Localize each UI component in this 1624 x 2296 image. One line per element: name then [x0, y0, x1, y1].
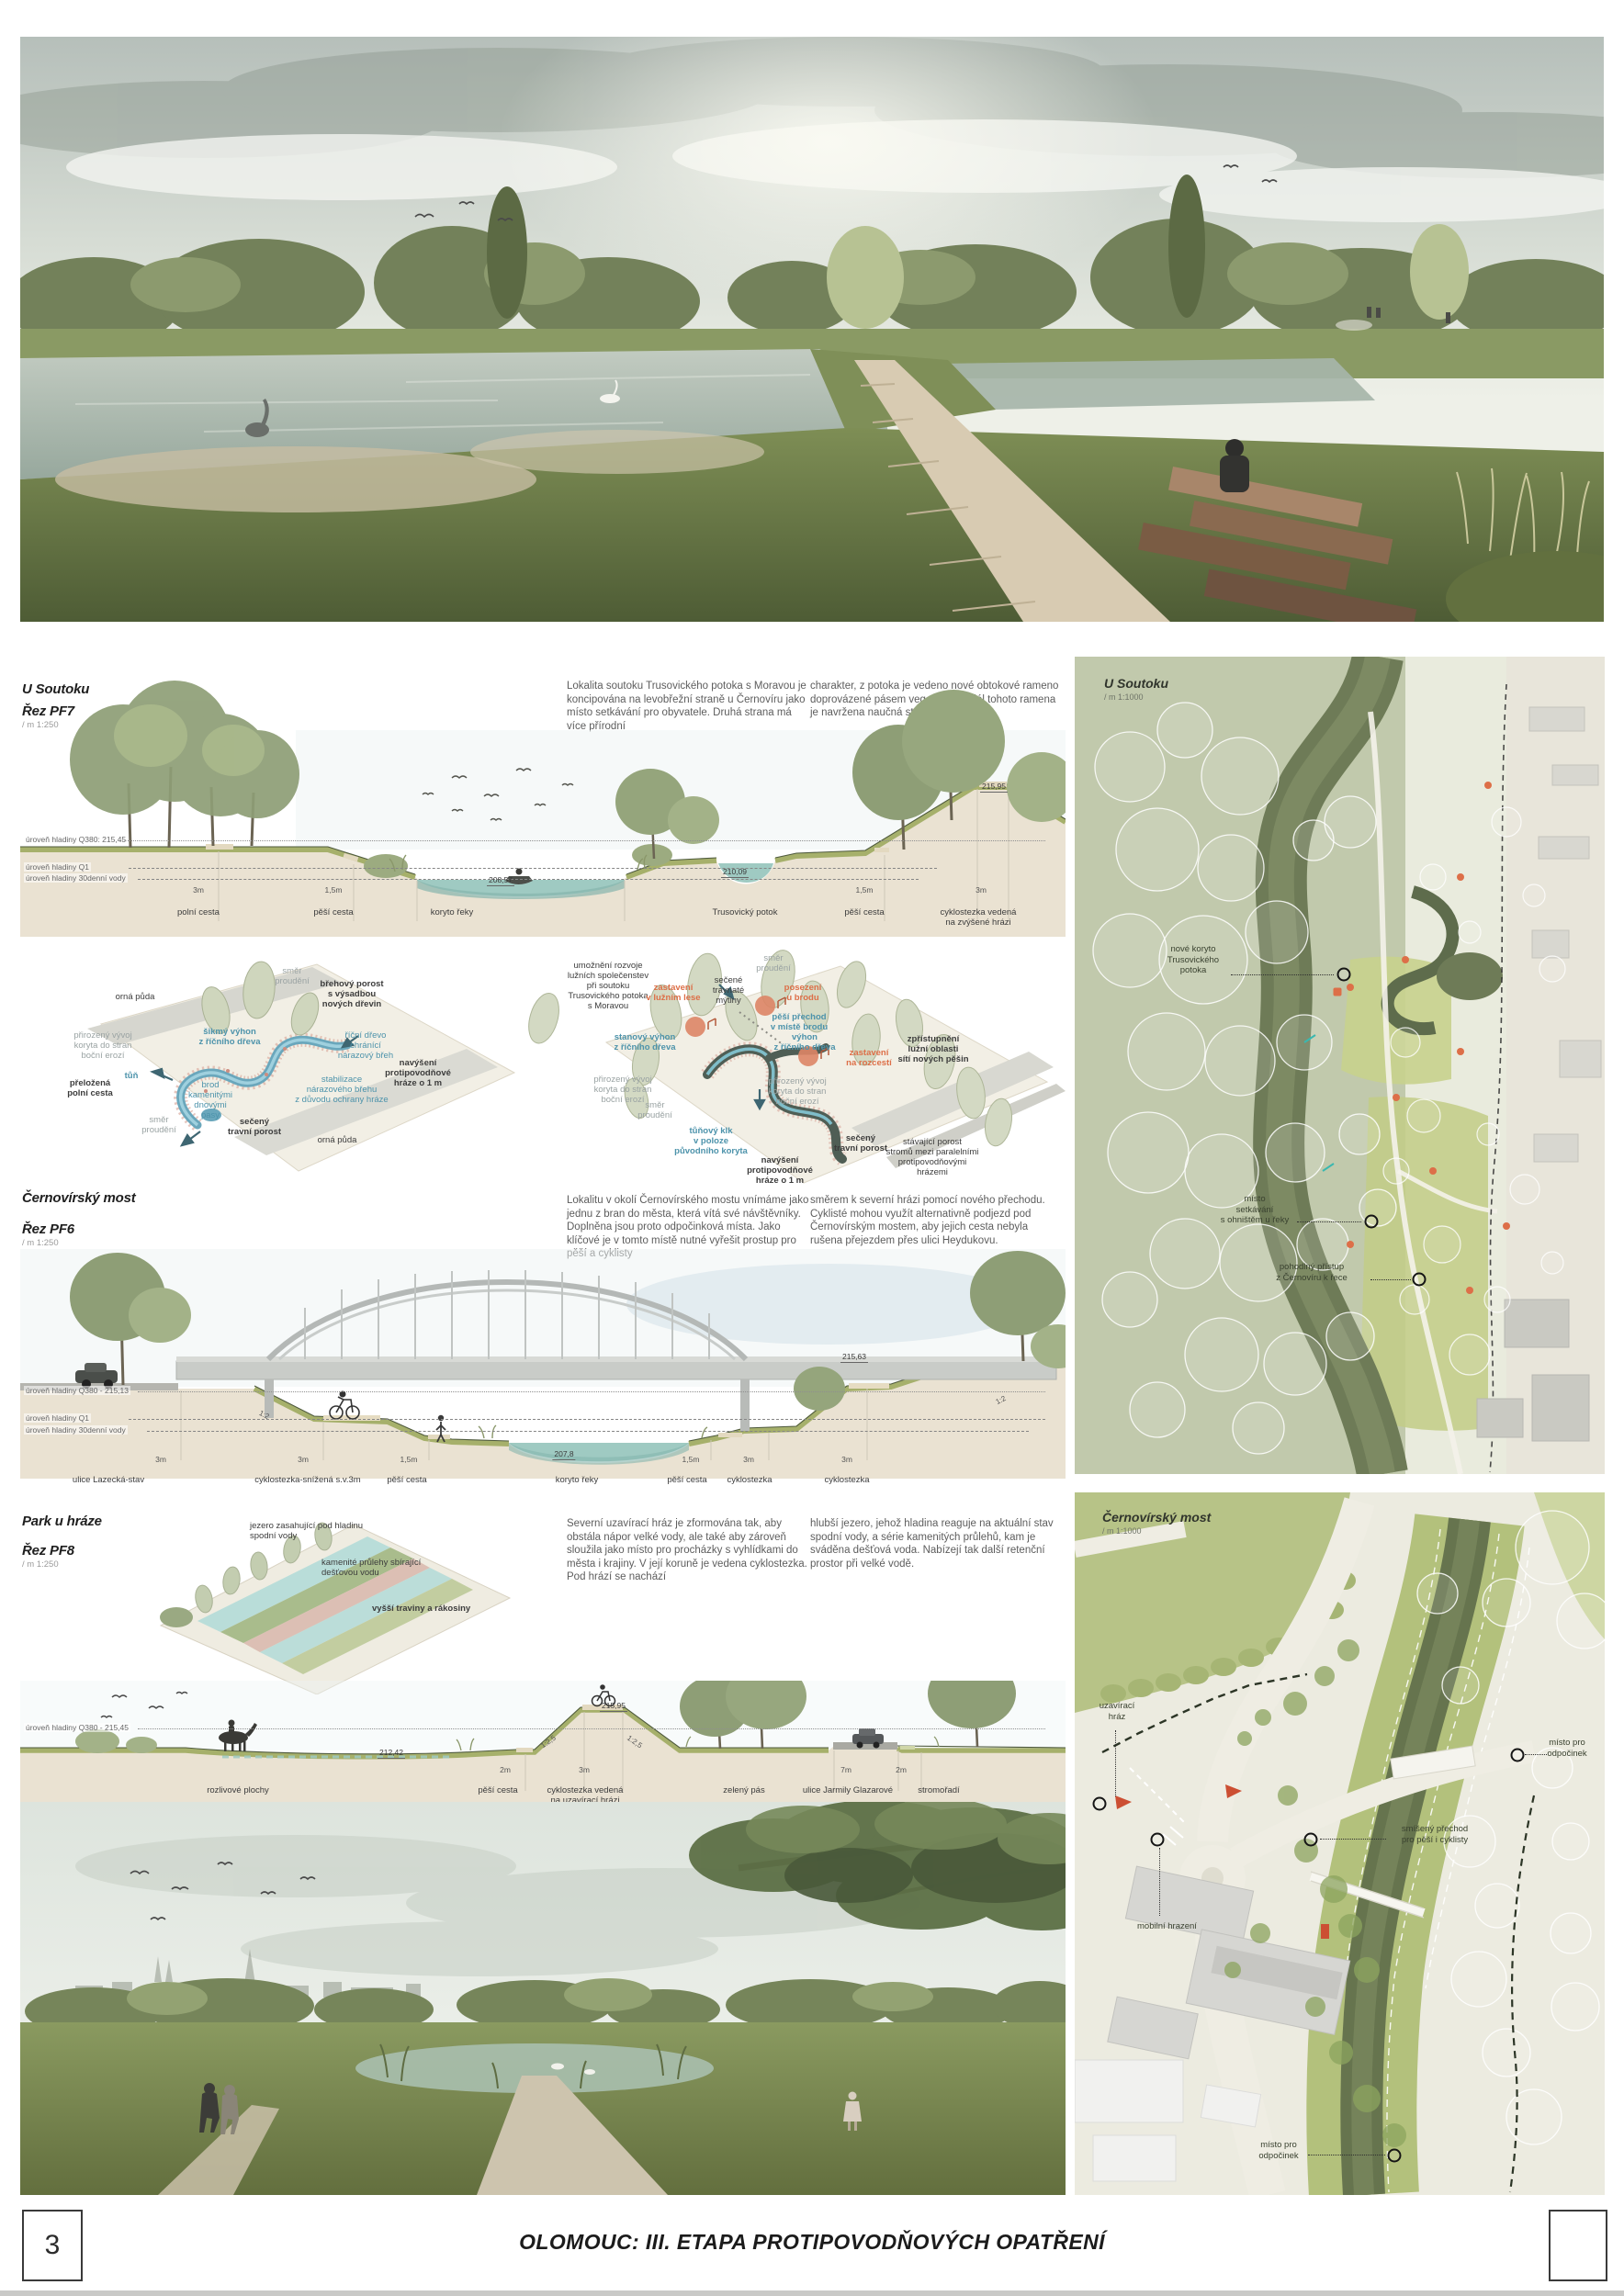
- pf8-axon-label-grasses: vyšší traviny a rákosiny: [372, 1604, 470, 1614]
- page-edge-strip: [0, 2290, 1624, 2296]
- axon1-label: říční dřevo chránící nárazový břeh: [338, 1030, 393, 1061]
- axon2-label: směr proudění: [637, 1100, 672, 1120]
- p6-dim: 1,5m: [682, 1455, 700, 1464]
- map2-annotation-rest-spot-2: místo pro odpočinek: [1258, 2140, 1298, 2161]
- axon2-label: zpřístupnění lužní oblasti sítí nových p…: [897, 1034, 968, 1064]
- footer-empty-box: [1549, 2210, 1607, 2281]
- pf6-ground-label: koryto řeky: [556, 1475, 598, 1485]
- axon1-label: tůň: [125, 1071, 139, 1081]
- pf8-dim: 2m: [896, 1765, 907, 1774]
- axon1-label: přeložená polní cesta: [67, 1078, 113, 1098]
- p6-dim: 3m: [841, 1455, 852, 1464]
- pf7-elevation-potok: 210,09: [721, 867, 749, 878]
- axon1-label: brod kamenitými dnovými pasy: [188, 1080, 232, 1120]
- pf8-axon-label-swales: kamenité průlehy sbírající dešťovou vodu: [321, 1558, 421, 1578]
- pf7-level-30day: úroveň hladiny 30denní vody: [24, 873, 128, 883]
- axon2-label: tůňový klk v poloze původního koryta: [674, 1126, 748, 1156]
- pf8-level-q380: úroveň hladiny Q380 - 215,45: [24, 1723, 130, 1732]
- pf6-ground-label: cyklostezka-snížená s.v.3m: [254, 1475, 360, 1485]
- axon1-label: orná půda: [318, 1135, 357, 1145]
- pf8-axon-label-lake: jezero zasahující pod hladinu spodní vod…: [250, 1521, 363, 1541]
- map1-marker: [1365, 1215, 1379, 1229]
- paragraph-pf8-col2: hlubší jezero, jehož hladina reaguje na …: [810, 1517, 1060, 1570]
- pf7-ground-label: cyklostezka vedená na zvýšené hrázi: [941, 907, 1017, 928]
- pf6-level-q1: úroveň hladiny Q1: [24, 1413, 91, 1423]
- pf8-elevation-dike: 215,95: [600, 1701, 627, 1712]
- pf6-ground-label: pěší cesta: [667, 1475, 706, 1485]
- map2-scale: / m 1:1000: [1102, 1526, 1142, 1536]
- section-scale-pf6: / m 1:250: [22, 1238, 59, 1248]
- presentation-board: U Soutoku Řez PF7 / m 1:250 Lokalita sou…: [0, 0, 1624, 2296]
- axon1-label: orná půda: [116, 992, 155, 1002]
- map1-orange-marker: [1334, 988, 1342, 996]
- map2-leader: [1308, 2155, 1385, 2155]
- pf8-ground-label: pěší cesta: [478, 1785, 517, 1795]
- section-title-cernovirsky-most: Černovírský most: [22, 1190, 136, 1206]
- pf6-q380-line: [138, 1391, 1045, 1392]
- map1-leader: [1370, 1279, 1411, 1280]
- bottom-meadow-rendering: [20, 1802, 1066, 2195]
- pf7-30day-line: [138, 879, 919, 880]
- paragraph-pf8-col1: Severní uzavírací hráz je zformována tak…: [567, 1517, 811, 1584]
- pf7-ground-label: polní cesta: [177, 907, 220, 917]
- map1-scale: / m 1:1000: [1104, 692, 1144, 702]
- pf8-q380-line: [138, 1728, 1045, 1729]
- axon1-label: břehový porost s výsadbou nových dřevin: [320, 979, 383, 1009]
- map1-marker: [1413, 1273, 1427, 1287]
- pf7-ground-label: Trusovický potok: [713, 907, 778, 917]
- pf7-dim-1: 3m: [193, 885, 204, 895]
- pf6-30day-line: [147, 1431, 1029, 1432]
- section-scale-pf8: / m 1:250: [22, 1559, 59, 1570]
- p6-dim: 3m: [298, 1455, 309, 1464]
- axon2-label: zastavení na rozcestí: [846, 1048, 892, 1068]
- section-title-park-u-hraze: Park u hráze: [22, 1514, 102, 1529]
- pf8-dim: 7m: [840, 1765, 851, 1774]
- axon1-label: přirozený vývoj koryta do stran boční er…: [73, 1030, 131, 1061]
- map2-annotation-mobile-barrier: mobilní hrazení: [1137, 1921, 1197, 1932]
- axon1-label: směr proudění: [141, 1115, 176, 1135]
- pf8-ground-label: stromořadí: [918, 1785, 959, 1795]
- map1-annotation-access: pohodlný přístup z Černovíru k řece: [1276, 1262, 1348, 1283]
- map2-marker: [1388, 2149, 1402, 2163]
- axon2-label: přirozený vývoj koryta do stran boční er…: [768, 1076, 826, 1107]
- map1-annotation-meeting-place: místo setkávání s ohništěm u řeky: [1221, 1194, 1289, 1226]
- pf7-q380-line: [119, 840, 1045, 841]
- pf6-level-q380: úroveň hladiny Q380 - 215,13: [24, 1386, 130, 1395]
- pf8-elevation-ground: 212,42: [378, 1748, 405, 1759]
- axon2-label: sečený travní porost: [834, 1133, 887, 1154]
- axon1-label: stabilizace nárazového břehu z důvodu oc…: [295, 1075, 388, 1105]
- section-cut-pf8: Řez PF8: [22, 1543, 74, 1559]
- axon2-label: pěší přechod v místě brodu: [771, 1012, 828, 1032]
- p6-dim: 1,5m: [400, 1455, 418, 1464]
- map2-marker: [1151, 1833, 1165, 1847]
- map2-leader: [1525, 1754, 1547, 1755]
- pf7-dim-4: 3m: [976, 885, 987, 895]
- map2-annotation-crossing: smíšený přechod pro pěší i cyklisty: [1402, 1824, 1468, 1845]
- axon2-label: směr proudění: [756, 953, 791, 974]
- pf8-dim: 3m: [579, 1765, 590, 1774]
- pf6-level-30day: úroveň hladiny 30denní vody: [24, 1425, 128, 1435]
- section-cut-pf6: Řez PF6: [22, 1221, 74, 1237]
- map2-annotation-rest-spot-1: místo pro odpočinek: [1547, 1738, 1586, 1759]
- axon2-label: stávající porost stromů mezi paralelními…: [886, 1137, 979, 1177]
- pf6-ground-label: cyklostezka: [824, 1475, 869, 1485]
- paragraph-pf6-col2: směrem k severní hrázi pomocí nového pře…: [810, 1194, 1060, 1247]
- pf6-section-drawing-bridge: [20, 1249, 1066, 1479]
- p6-dim: 3m: [155, 1455, 166, 1464]
- pf7-section-drawing: [20, 675, 1066, 937]
- axon1-label: šikmý výhon z říčního dřeva: [198, 1027, 260, 1047]
- axon2-label: sečené travnaté mýtiny: [713, 975, 744, 1006]
- p6-dim: 3m: [743, 1455, 754, 1464]
- map2-leader: [1159, 1848, 1160, 1916]
- axon2-label: zastavení v lužním lese: [646, 983, 700, 1003]
- axon1-label: směr proudění: [275, 966, 310, 986]
- map1-annotation-new-channel: nové koryto Trusovického potoka: [1167, 944, 1219, 976]
- axon2-label: posezení u brodu: [784, 983, 822, 1003]
- pf8-ground-label: zelený pás: [723, 1785, 764, 1795]
- pf7-ground-label: koryto řeky: [431, 907, 473, 917]
- axon1-label: sečený travní porost: [228, 1117, 281, 1137]
- pf8-ground-label: ulice Jarmily Glazarové: [803, 1785, 893, 1795]
- pf7-ground-label: pěší cesta: [313, 907, 353, 917]
- pf7-ground-label: pěší cesta: [844, 907, 884, 917]
- pf6-elevation-river: 207,8: [552, 1449, 575, 1460]
- pf6-ground-label: pěší cesta: [387, 1475, 426, 1485]
- pf8-ground-label: rozlivové plochy: [207, 1785, 269, 1795]
- pf6-ground-label: cyklostezka: [727, 1475, 772, 1485]
- axon2-label: výhon z říčního dřeva: [773, 1032, 835, 1052]
- map2-marker: [1511, 1749, 1525, 1762]
- pf7-dim-2: 1,5m: [325, 885, 343, 895]
- map2-leader: [1320, 1839, 1386, 1840]
- pf8-dim: 2m: [500, 1765, 511, 1774]
- map1-leader: [1297, 1221, 1361, 1222]
- pf6-elevation-deck: 215,63: [840, 1352, 868, 1363]
- pf7-level-q1: úroveň hladiny Q1: [24, 862, 91, 872]
- axon2-label: navýšení protipovodňové hráze o 1 m: [747, 1155, 813, 1186]
- map2-marker: [1304, 1833, 1318, 1847]
- map1-marker: [1337, 968, 1351, 982]
- top-river-park-rendering: [20, 37, 1604, 622]
- axon2-label: umožnění rozvoje lužních společenstev př…: [568, 961, 648, 1011]
- map2-marker: [1093, 1797, 1107, 1811]
- map2-title: Černovírský most: [1102, 1510, 1211, 1525]
- site-plan-u-soutoku: [1075, 657, 1605, 1474]
- map1-leader: [1231, 974, 1334, 975]
- pf7-dim-3: 1,5m: [856, 885, 874, 895]
- axon1-label: navýšení protipovodňové hráze o 1 m: [385, 1058, 451, 1088]
- pf7-elevation-dike: 215,95: [980, 782, 1008, 793]
- map2-annotation-closing-dike: uzavírací hráz: [1100, 1701, 1135, 1722]
- board-title: OLOMOUC: III. ETAPA PROTIPOVODŇOVÝCH OPA…: [0, 2230, 1624, 2255]
- pf6-ground-label: ulice Lazecká-stav: [73, 1475, 144, 1485]
- pf7-q1-line: [129, 868, 937, 869]
- map2-leader: [1115, 1730, 1116, 1796]
- axon2-label: stanový výhon z říčního dřeva: [614, 1032, 675, 1052]
- map1-title: U Soutoku: [1104, 676, 1168, 691]
- pf7-level-q380: úroveň hladiny Q380: 215,45: [24, 835, 128, 844]
- pf7-elevation-river: 208,57: [487, 875, 514, 886]
